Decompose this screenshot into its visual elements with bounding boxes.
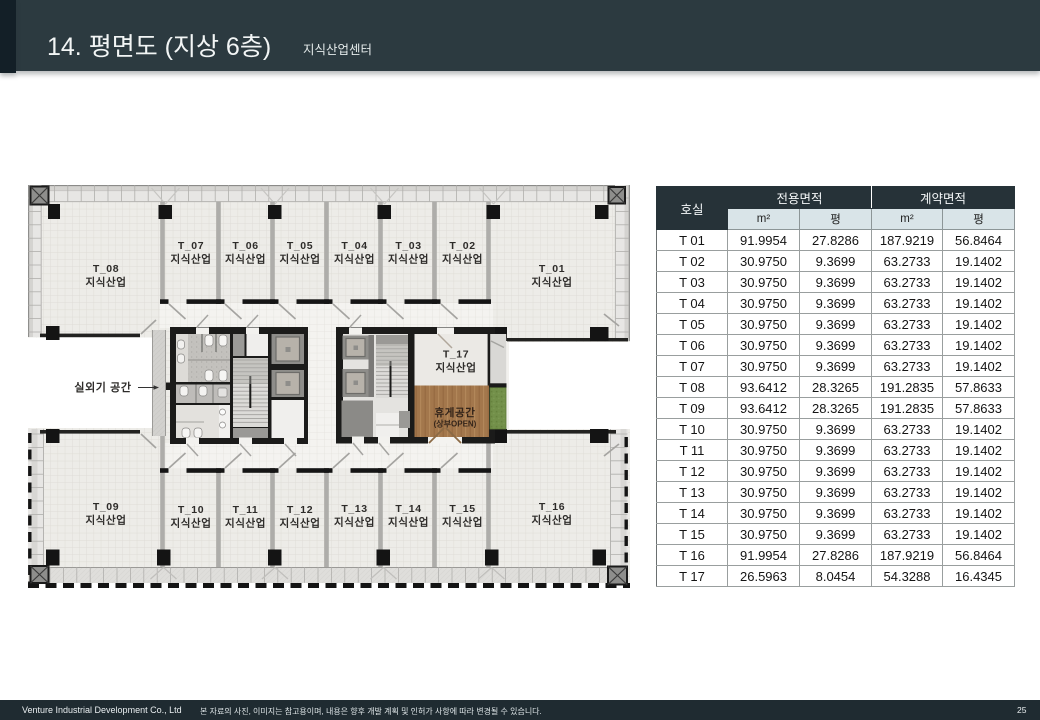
svg-text:지식산업: 지식산업 <box>279 253 320 266</box>
svg-text:T_07: T_07 <box>178 240 204 252</box>
svg-text:지식산업: 지식산업 <box>334 253 375 266</box>
svg-text:지식산업: 지식산업 <box>225 253 266 266</box>
svg-text:T_11: T_11 <box>233 504 259 516</box>
svg-text:T_16: T_16 <box>539 501 565 513</box>
svg-text:T_15: T_15 <box>449 503 475 515</box>
svg-text:지식산업: 지식산업 <box>170 253 211 266</box>
svg-text:지식산업: 지식산업 <box>442 516 483 529</box>
svg-text:T_02: T_02 <box>449 240 475 252</box>
svg-text:T_08: T_08 <box>93 263 119 275</box>
svg-text:지식산업: 지식산업 <box>225 517 266 530</box>
svg-text:지식산업: 지식산업 <box>279 517 320 530</box>
svg-text:휴게공간: 휴게공간 <box>434 406 475 419</box>
svg-text:지식산업: 지식산업 <box>442 253 483 266</box>
svg-text:(상부OPEN): (상부OPEN) <box>434 419 477 429</box>
svg-text:T_09: T_09 <box>93 501 119 513</box>
svg-text:실외기 공간: 실외기 공간 <box>74 380 131 394</box>
svg-text:지식산업: 지식산업 <box>531 276 572 289</box>
svg-text:T_05: T_05 <box>287 240 313 252</box>
svg-text:지식산업: 지식산업 <box>170 517 211 530</box>
svg-text:지식산업: 지식산업 <box>334 516 375 529</box>
svg-text:지식산업: 지식산업 <box>85 514 126 527</box>
svg-text:T_12: T_12 <box>287 504 313 516</box>
svg-text:지식산업: 지식산업 <box>435 361 476 374</box>
svg-text:지식산업: 지식산업 <box>85 276 126 289</box>
svg-text:T_03: T_03 <box>395 240 421 252</box>
svg-text:지식산업: 지식산업 <box>388 253 429 266</box>
svg-text:T_06: T_06 <box>232 240 258 252</box>
svg-text:T_01: T_01 <box>539 263 565 275</box>
svg-text:T_10: T_10 <box>178 504 204 516</box>
svg-text:T_14: T_14 <box>395 503 421 515</box>
svg-text:지식산업: 지식산업 <box>531 514 572 527</box>
svg-text:T_04: T_04 <box>341 240 367 252</box>
svg-text:지식산업: 지식산업 <box>388 516 429 529</box>
svg-text:T_17: T_17 <box>443 349 469 361</box>
svg-text:T_13: T_13 <box>341 503 367 515</box>
